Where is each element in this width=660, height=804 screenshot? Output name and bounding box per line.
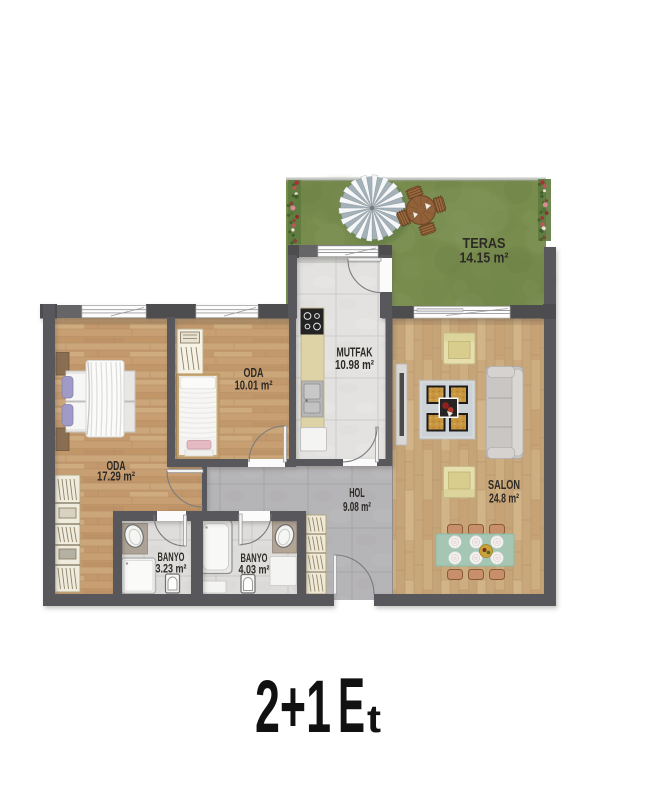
svg-text:4.03 m²: 4.03 m² bbox=[239, 563, 270, 577]
svg-text:10.01 m²: 10.01 m² bbox=[235, 379, 273, 393]
svg-text:E: E bbox=[338, 661, 365, 749]
svg-text:14.15 m²: 14.15 m² bbox=[460, 251, 509, 267]
svg-text:t: t bbox=[367, 698, 381, 741]
svg-text:HOL: HOL bbox=[349, 486, 365, 500]
svg-text:10.98 m²: 10.98 m² bbox=[335, 358, 374, 372]
svg-text:24.8 m²: 24.8 m² bbox=[489, 492, 519, 506]
svg-text:9.08 m²: 9.08 m² bbox=[343, 500, 371, 514]
svg-text:2+1: 2+1 bbox=[255, 665, 331, 748]
svg-text:3.23 m²: 3.23 m² bbox=[156, 562, 187, 576]
svg-text:17.29 m²: 17.29 m² bbox=[97, 470, 135, 484]
svg-text:SALON: SALON bbox=[488, 478, 520, 492]
